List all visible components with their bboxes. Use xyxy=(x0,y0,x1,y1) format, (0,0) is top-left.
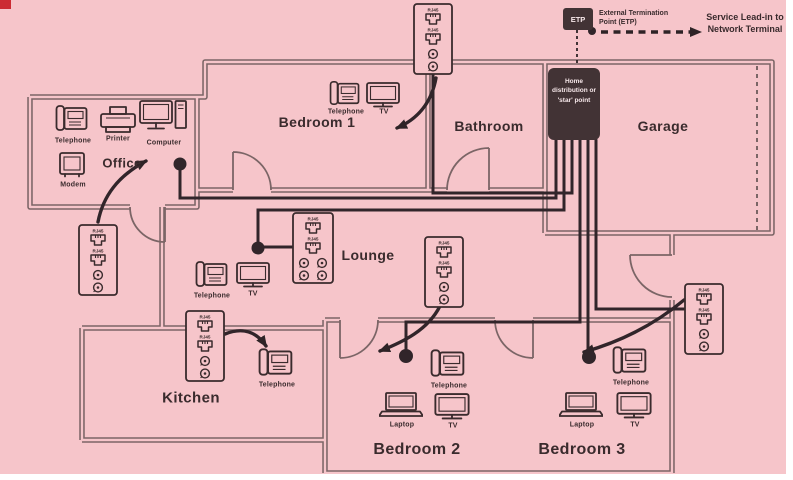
telephone-icon xyxy=(432,350,464,375)
scan-corner-mark xyxy=(0,0,11,9)
tv-icon xyxy=(367,83,399,107)
laptop-icon xyxy=(379,393,423,416)
cables xyxy=(180,75,684,354)
telephone-icon xyxy=(57,106,87,130)
cable-nodes xyxy=(174,27,597,364)
device-caption: TV xyxy=(379,109,388,116)
computer-icon xyxy=(140,101,186,129)
device-caption: Telephone xyxy=(431,383,467,390)
room-label-lounge: Lounge xyxy=(342,247,395,263)
printer-icon xyxy=(101,107,135,132)
room-label-bedroom1: Bedroom 1 xyxy=(279,114,356,130)
room-label-bedroom2: Bedroom 2 xyxy=(373,441,460,459)
device-caption: Telephone xyxy=(259,382,295,389)
page-edge xyxy=(0,474,793,480)
device-caption: Computer xyxy=(147,140,182,147)
room-label-kitchen: Kitchen xyxy=(162,390,220,407)
room-label-office: Office xyxy=(102,156,141,171)
outlet-plate-bedroom3 xyxy=(685,284,723,354)
star-point-label: Home distribution or 'star' point xyxy=(551,77,597,105)
arrow-bedroom2 xyxy=(380,306,440,351)
floorplan-diagram: RJ45 RJ45 RJ45 RJ45 xyxy=(0,0,793,480)
tv-icon xyxy=(435,394,468,418)
telephone-icon xyxy=(260,349,292,374)
room-label-bathroom: Bathroom xyxy=(454,118,523,134)
device-caption: TV xyxy=(630,422,639,429)
outlet-plate-bedroom1 xyxy=(414,4,452,74)
room-label-garage: Garage xyxy=(638,118,689,134)
device-caption: TV xyxy=(448,423,457,430)
floorplan-svg: RJ45 RJ45 RJ45 RJ45 xyxy=(0,0,793,480)
service-lead-label: Service Lead-in to Network Terminal xyxy=(700,12,790,35)
telephone-icon xyxy=(331,82,359,104)
outlet-plate-lounge xyxy=(293,213,333,283)
device-caption: Telephone xyxy=(613,380,649,387)
modem-icon xyxy=(60,153,84,177)
device-caption: Laptop xyxy=(570,422,595,429)
page-edge xyxy=(786,0,793,480)
etp-box-label: ETP xyxy=(563,8,593,30)
device-caption: Telephone xyxy=(194,293,230,300)
outlet-plate-office xyxy=(79,225,117,295)
device-caption: Printer xyxy=(106,136,130,143)
device-caption: Laptop xyxy=(390,422,415,429)
room-label-bedroom3: Bedroom 3 xyxy=(538,441,625,459)
laptop-icon xyxy=(559,393,603,416)
etp-label: External Termination Point (ETP) xyxy=(599,9,673,27)
tv-icon xyxy=(237,263,269,287)
device-caption: Telephone xyxy=(328,109,364,116)
device-caption: Telephone xyxy=(55,138,91,145)
telephone-icon xyxy=(614,347,646,372)
tv-icon xyxy=(617,393,650,417)
device-caption: TV xyxy=(248,291,257,298)
outlet-plate-bedroom2 xyxy=(425,237,463,307)
device-caption: Modem xyxy=(60,182,86,189)
arrow-kitchen xyxy=(225,331,266,346)
telephone-icon xyxy=(197,262,227,286)
outlet-plate-kitchen xyxy=(186,311,224,381)
cable-right-outlet xyxy=(596,140,684,309)
